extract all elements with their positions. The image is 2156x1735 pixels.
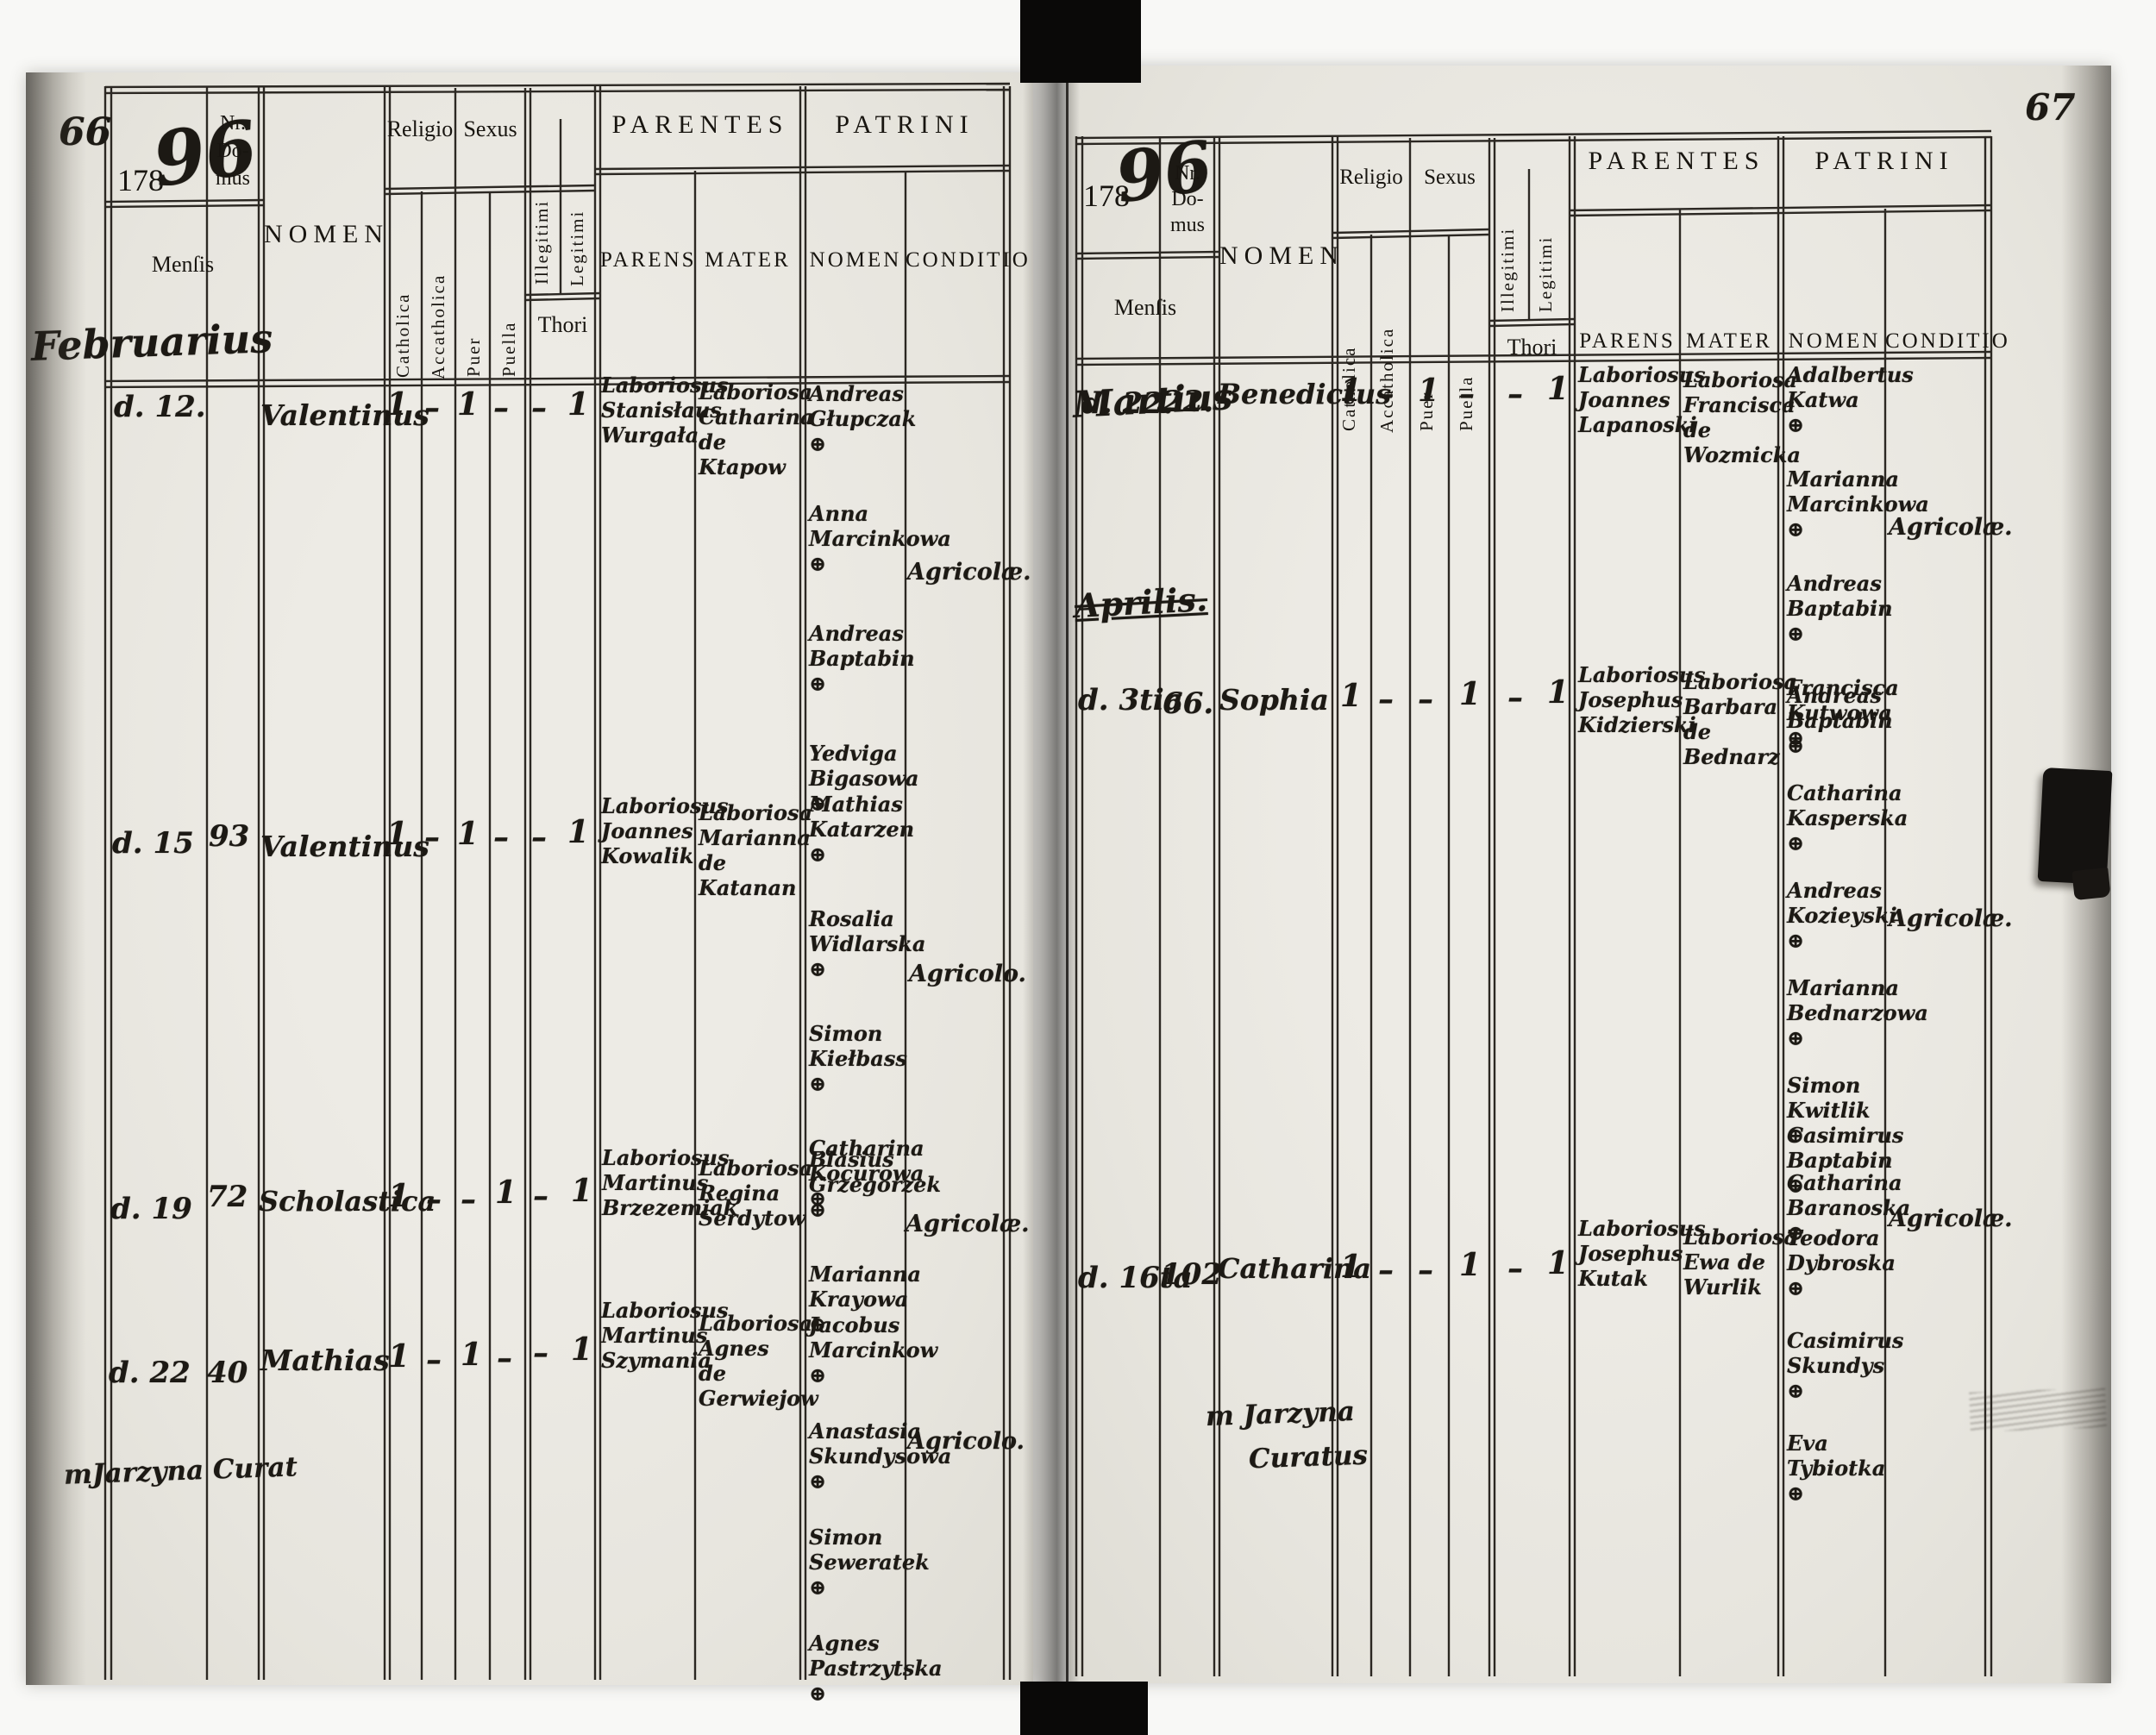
left-header-catholica: Catholica	[392, 205, 414, 378]
left-header-thori: Thori	[525, 312, 600, 338]
mark-puer: –	[1418, 681, 1433, 717]
patrini-name: Casimirus Baptabin ⊕	[1787, 1123, 1883, 1198]
entry-nomen: Sophia	[1219, 683, 1329, 717]
entry-parens: Laboriosus Stanisłaus Wurgała	[601, 373, 698, 448]
right-curate-signature-title: Curatus	[1248, 1440, 1368, 1475]
right-header-legitimi: Legitimi	[1535, 171, 1557, 312]
right-header-mensis: Menſis	[1076, 295, 1214, 321]
patrini-name: Eva Tybiotka ⊕	[1787, 1431, 1883, 1506]
entry-conditio: Agricolæ.	[1889, 514, 2013, 541]
entry-die: d. 12.	[114, 390, 206, 424]
right-header-religio: Religio	[1332, 166, 1410, 190]
entry-nomen: Benedictus	[1218, 378, 1391, 410]
mark-accatholica: –	[424, 819, 440, 855]
right-curate-signature-name: m Jarzyna	[1205, 1396, 1355, 1432]
book-clasp	[2038, 767, 2113, 885]
mark-illegitimi: –	[531, 390, 547, 426]
right-section-month-label: Aprilis.	[1074, 579, 1208, 625]
left-header-patrini-nomen: NOMEN	[805, 248, 906, 272]
entry-mater: Laboriosa Barbara de Bednarz	[1683, 669, 1777, 769]
left-header-mus: mus	[207, 167, 259, 191]
patrini-name: Teodora Dybroska ⊕	[1787, 1225, 1883, 1300]
patrini-name: Rosalia Widlarska ⊕	[809, 906, 911, 981]
patrini-name: Anna Marcinkowa ⊕	[809, 501, 911, 576]
mark-catholica: 1	[388, 1338, 410, 1375]
mark-legitimi: 1	[571, 1173, 592, 1209]
mark-puer: 1	[457, 386, 479, 423]
left-header-nr: Nr.	[207, 112, 259, 135]
left-header-legitimi: Legitimi	[567, 138, 588, 286]
mark-illegitimi: –	[1507, 680, 1523, 716]
mark-puella: –	[493, 819, 509, 855]
entry-mater: Laboriosa Marianna de Katanan	[699, 800, 799, 900]
right-header-parens: PARENS	[1575, 329, 1680, 354]
entry-domus: 40	[207, 1356, 248, 1390]
patrini-name: Andreas Głupczak ⊕	[809, 381, 911, 456]
entry-domus: 66.	[1163, 686, 1213, 721]
patrini-name: Mathias Katarzen ⊕	[809, 792, 911, 867]
left-header-do: Do-	[207, 140, 259, 163]
mark-puer: –	[1418, 1252, 1433, 1288]
mark-catholica: 1	[388, 1178, 410, 1214]
mark-catholica: 1	[1340, 1249, 1362, 1285]
entry-domus: 102	[1161, 1257, 1222, 1292]
entry-domus: 22.	[1163, 385, 1213, 419]
mark-catholica: 1	[1340, 373, 1362, 409]
center-binding-shadow	[1023, 66, 1080, 1685]
patrini-name: Simon Seweratek ⊕	[809, 1525, 911, 1600]
patrini-name: Andreas Baptabin ⊕	[1787, 683, 1883, 758]
entry-parens: Laboriosus Joannes Kowalik	[601, 793, 698, 868]
left-header-puella: Puella	[498, 293, 520, 377]
entry-conditio: Agricolæ.	[907, 559, 1031, 586]
mark-puella: 1	[1459, 1247, 1481, 1283]
mark-accatholica: –	[1378, 376, 1394, 412]
right-header-conditio: CONDITIO	[1885, 329, 1985, 354]
patrini-name: Andreas Baptabin ⊕	[1787, 571, 1883, 646]
patrini-name: Marianna Bednarzowa ⊕	[1787, 975, 1883, 1050]
mark-puella: 1	[495, 1174, 517, 1211]
right-header-mater: MATER	[1680, 329, 1778, 354]
right-header-patrini: PATRINI	[1783, 147, 1985, 176]
mark-illegitimi: –	[1507, 1250, 1523, 1287]
left-header-mater: MATER	[695, 248, 800, 272]
right-header-thori: Thori	[1489, 335, 1575, 360]
mark-illegitimi: –	[533, 1178, 548, 1214]
mark-legitimi: 1	[567, 814, 589, 850]
binding-strap-top	[1020, 0, 1141, 83]
patrini-name: Jacobus Marcinkow ⊕	[809, 1312, 911, 1387]
entry-patrini-list: Andreas Głupczak ⊕ Anna Marcinkowa ⊕ And…	[809, 381, 911, 861]
left-header-nomen: NOMEN	[264, 220, 385, 249]
mark-legitimi: 1	[1547, 371, 1569, 407]
entry-nomen: Mathias	[260, 1344, 390, 1377]
entry-conditio: Agricolo.	[907, 1428, 1025, 1455]
left-header-mensis: Menſis	[105, 252, 260, 278]
right-header-do: Do-	[1160, 188, 1215, 211]
parish-register-scan: 66 178 96 Nr. Do- mus Menſis NOMEN Relig…	[0, 0, 2156, 1735]
patrini-name: Simon Kiełbass ⊕	[809, 1021, 911, 1096]
left-header-conditio: CONDITIO	[906, 248, 1004, 272]
mark-puer: –	[461, 1181, 476, 1218]
entry-mater: Laboriosa Ewa de Wurlik	[1683, 1225, 1777, 1300]
left-header-patrini: PATRINI	[805, 110, 1004, 140]
entry-domus: 93	[209, 819, 249, 854]
left-header-religio: Religio	[385, 116, 455, 142]
mark-puella: –	[493, 390, 509, 426]
mark-accatholica: –	[1378, 681, 1394, 717]
mark-legitimi: 1	[1547, 674, 1569, 711]
entry-die: d. 19	[110, 1192, 192, 1226]
left-header-parentes: PARENTES	[600, 110, 800, 140]
patrini-name: Marianna Marcinkowa ⊕	[1787, 467, 1883, 542]
patrini-name: Catharina Kasperska ⊕	[1787, 780, 1883, 855]
entry-die: d. 22.	[1081, 386, 1174, 421]
right-header-nr: Nr.	[1160, 162, 1215, 185]
right-header-mus: mus	[1160, 214, 1215, 237]
mark-puer: 1	[461, 1337, 482, 1373]
binding-strap-bottom	[1020, 1682, 1148, 1735]
entry-conditio: Agricolæ.	[1889, 1206, 2013, 1232]
mark-accatholica: –	[426, 1181, 442, 1218]
right-header-sexus: Sexus	[1410, 166, 1489, 190]
mark-puer: 1	[1418, 373, 1439, 409]
entry-parens: Laboriosus Martinus Brzezemiak	[602, 1145, 699, 1220]
mark-legitimi: 1	[1547, 1245, 1569, 1281]
entry-parens: Laboriosus Martinus Szymania	[601, 1298, 698, 1373]
mark-accatholica: –	[1378, 1252, 1394, 1288]
entry-parens: Laboriosus Josephus Kutak	[1578, 1216, 1678, 1291]
entry-mater: Laboriosa Francisca de Wozmicka	[1683, 367, 1777, 467]
patrini-name: Adalbertus Katwa ⊕	[1787, 362, 1883, 437]
patrini-name: Blasius Grzegorzek ⊕	[809, 1147, 911, 1222]
entry-mater: Laboriosa Catharina de Ktapow	[699, 379, 799, 479]
left-header-parens: PARENS	[600, 248, 695, 272]
left-header-sexus: Sexus	[455, 116, 525, 142]
mark-puella: –	[1459, 376, 1475, 412]
mark-catholica: 1	[386, 816, 408, 852]
entry-conditio: Agricolæ.	[1889, 905, 2013, 932]
right-header-illegitimi: Illegitimi	[1497, 157, 1519, 312]
mark-illegitimi: –	[1507, 376, 1523, 412]
mark-puer: 1	[457, 816, 479, 852]
mark-illegitimi: –	[533, 1335, 548, 1371]
mark-legitimi: 1	[571, 1331, 592, 1368]
left-page-gutter-shadow	[26, 72, 86, 1685]
patrini-name: Andreas Kozieyski ⊕	[1787, 878, 1883, 953]
mark-illegitimi: –	[531, 819, 547, 855]
entry-conditio: Agricolo.	[909, 961, 1026, 987]
entry-mater: Laboriosa Agnes de Gerwiejow	[699, 1311, 799, 1411]
mark-catholica: 1	[1340, 678, 1362, 714]
entry-mater: Laboriosa Regina Serdytow	[699, 1156, 799, 1231]
mark-legitimi: 1	[567, 386, 589, 423]
mark-catholica: 1	[386, 386, 408, 423]
left-header-accatholica: Accatholica	[428, 198, 449, 379]
page-edge-line	[1066, 66, 1069, 1685]
right-header-nomen: NOMEN	[1219, 241, 1332, 271]
left-header-illegitimi: Illegitimi	[531, 125, 553, 285]
patrini-name: Casimirus Skundys ⊕	[1787, 1328, 1883, 1403]
entry-domus: 72	[207, 1180, 248, 1214]
mark-puella: –	[497, 1340, 512, 1376]
right-header-parentes: PARENTES	[1575, 147, 1778, 176]
left-header-puer: Puer	[463, 304, 485, 377]
mark-accatholica: –	[424, 390, 440, 426]
entry-die: d. 15	[112, 826, 194, 861]
book-clasp-tail	[2071, 867, 2110, 900]
entry-patrini-list: Casimirus Baptabin ⊕ Teodora Dybroska ⊕ …	[1787, 1123, 1883, 1533]
entry-parens: Laboriosus Josephus Kidzierski	[1578, 662, 1678, 737]
right-header-patrini-nomen: NOMEN	[1783, 329, 1885, 354]
entry-conditio: Agricolæ.	[906, 1211, 1030, 1237]
patrini-name: Andreas Baptabin ⊕	[809, 621, 911, 696]
entry-die: d. 22	[109, 1356, 191, 1390]
mark-accatholica: –	[426, 1342, 442, 1378]
patrini-name: Anastasia Skundysowa ⊕	[809, 1419, 911, 1494]
entry-parens: Laboriosus Joannes Lapanoski	[1578, 362, 1678, 437]
patrini-name: Agnes Pastrzytska ⊕	[809, 1631, 911, 1706]
mark-puella: 1	[1459, 676, 1481, 712]
entry-patrini-list: Jacobus Marcinkow ⊕ Anastasia Skundysowa…	[809, 1312, 911, 1735]
